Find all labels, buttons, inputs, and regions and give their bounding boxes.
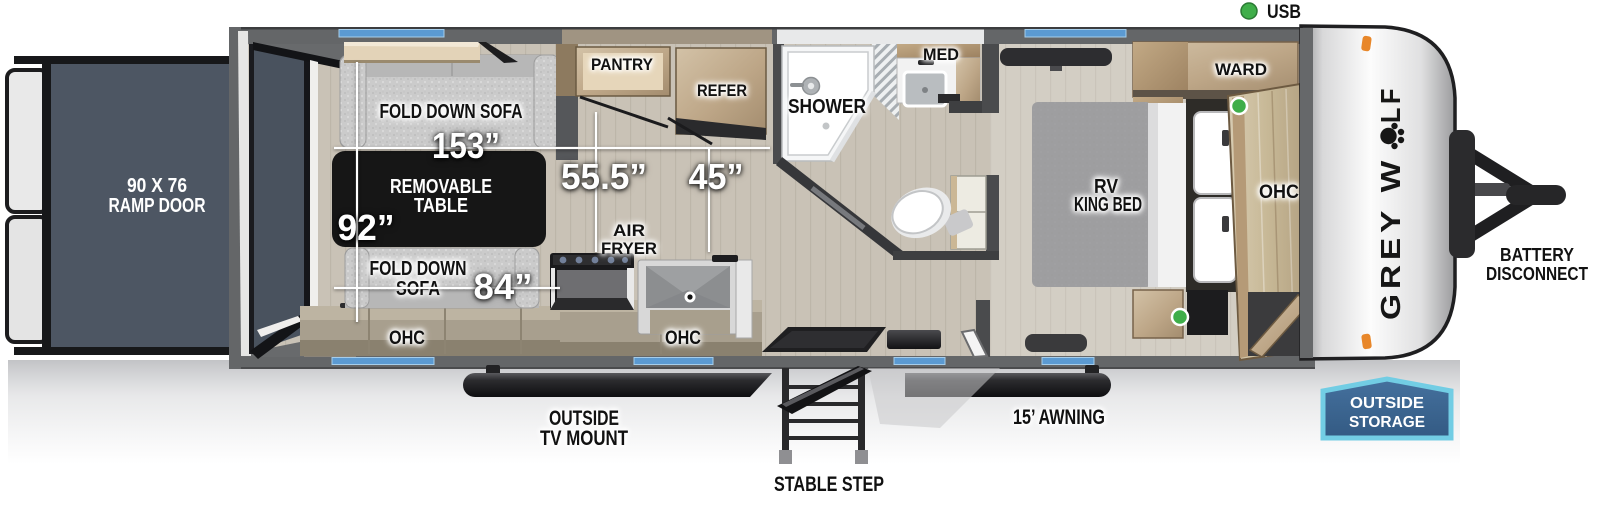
svg-text:45”: 45” (689, 156, 744, 197)
svg-text:FOLD DOWN SOFA: FOLD DOWN SOFA (380, 101, 523, 123)
svg-text:STABLE STEP: STABLE STEP (774, 473, 884, 496)
svg-text:90 X 76: 90 X 76 (127, 175, 187, 197)
svg-text:KING BED: KING BED (1074, 194, 1142, 216)
svg-text:15’ AWNING: 15’ AWNING (1013, 406, 1105, 429)
svg-text:84”: 84” (474, 266, 533, 307)
svg-text:RAMP DOOR: RAMP DOOR (109, 195, 206, 217)
svg-text:AIR: AIR (613, 221, 645, 240)
svg-text:OHC: OHC (389, 328, 425, 349)
svg-text:OUTSIDE: OUTSIDE (1350, 395, 1424, 412)
svg-text:MED: MED (923, 45, 959, 64)
svg-text:DISCONNECT: DISCONNECT (1486, 264, 1588, 284)
svg-text:OHC: OHC (665, 328, 701, 349)
svg-text:GREY W: GREY W (1375, 156, 1406, 320)
svg-text:FOLD DOWN: FOLD DOWN (370, 258, 467, 280)
svg-text:SHOWER: SHOWER (788, 96, 866, 118)
svg-text:TV MOUNT: TV MOUNT (540, 427, 628, 450)
svg-text:PANTRY: PANTRY (591, 55, 654, 74)
svg-text:WARD: WARD (1215, 60, 1267, 79)
svg-text:FRYER: FRYER (601, 239, 657, 258)
svg-text:55.5”: 55.5” (561, 156, 647, 197)
svg-text:BATTERY: BATTERY (1500, 245, 1574, 265)
svg-text:LF: LF (1375, 85, 1406, 123)
svg-text:92”: 92” (338, 207, 395, 248)
svg-text:STORAGE: STORAGE (1349, 414, 1425, 431)
svg-text:REFER: REFER (697, 81, 747, 100)
svg-text:153”: 153” (432, 125, 500, 166)
svg-text:OHC: OHC (1259, 182, 1299, 203)
svg-text:TABLE: TABLE (414, 195, 468, 217)
svg-text:USB: USB (1267, 2, 1301, 23)
